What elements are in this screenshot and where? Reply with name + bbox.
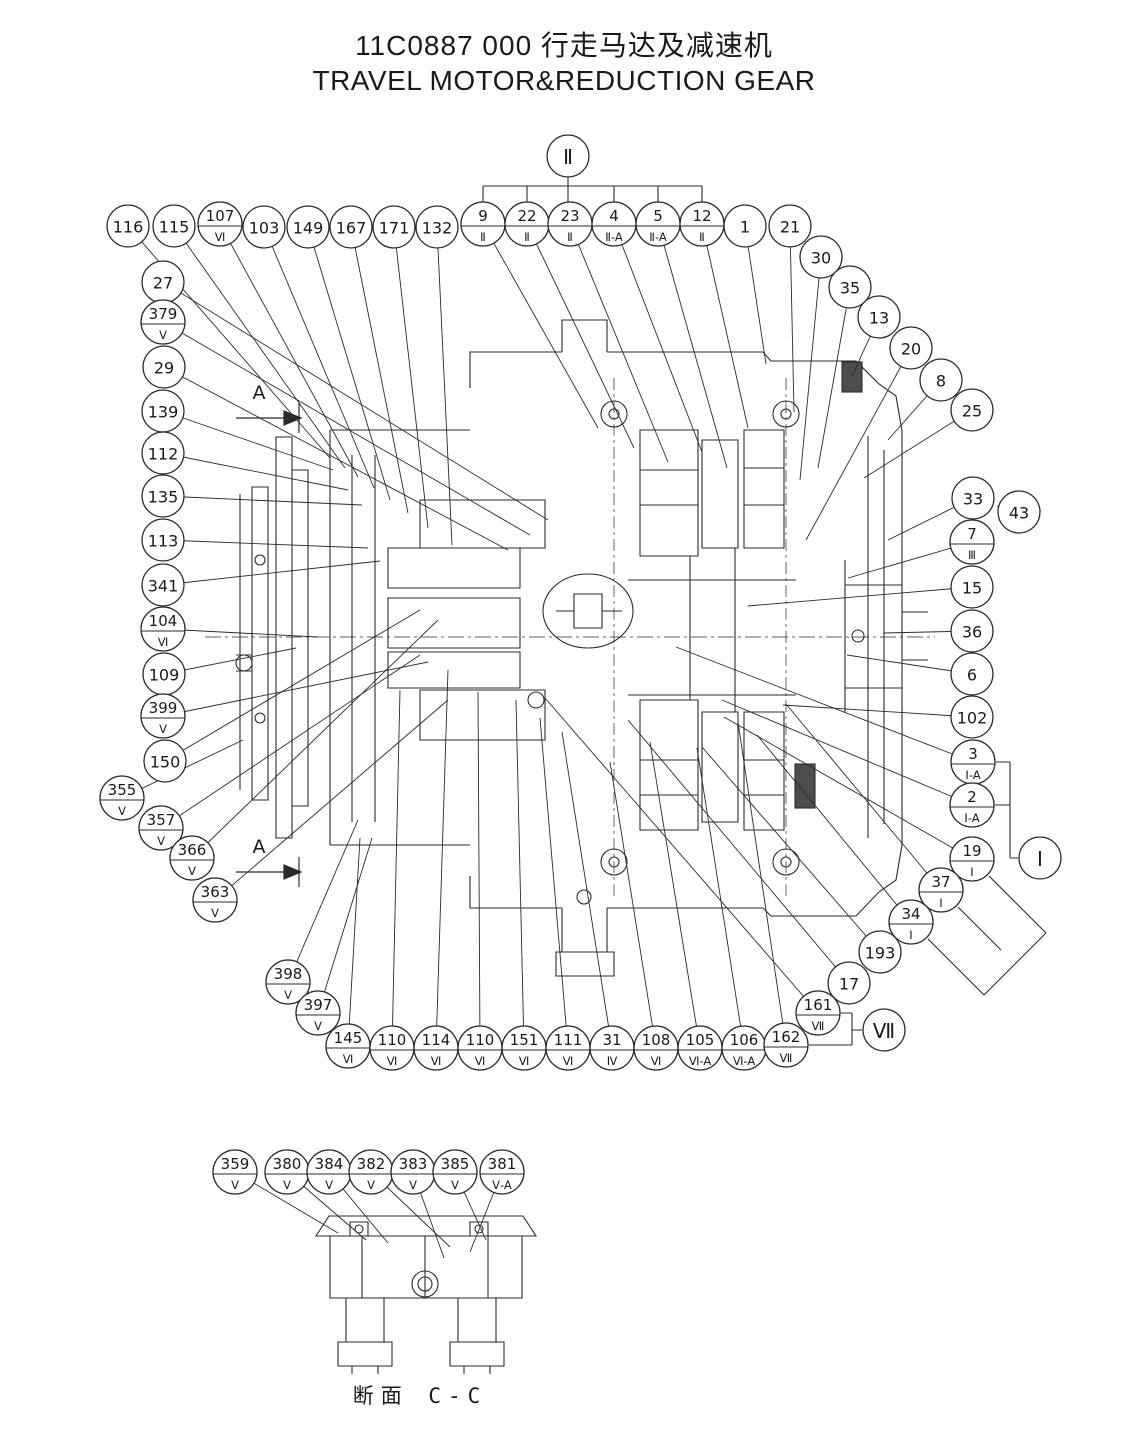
svg-text:31: 31: [602, 1031, 621, 1049]
svg-text:397: 397: [304, 996, 333, 1014]
section-arrow-a-lower: A: [236, 836, 301, 887]
balloon-113: 113: [142, 519, 184, 561]
balloon-379: 379Ⅴ: [141, 300, 185, 344]
balloon-399: 399Ⅴ: [141, 694, 185, 738]
balloon-366: 366Ⅴ: [170, 836, 214, 880]
svg-text:114: 114: [422, 1031, 451, 1049]
svg-text:355: 355: [108, 781, 137, 799]
svg-text:139: 139: [148, 403, 179, 422]
balloon-107: 107Ⅵ: [198, 202, 242, 246]
svg-text:13: 13: [869, 309, 889, 328]
svg-text:Ⅰ: Ⅰ: [1037, 847, 1043, 871]
svg-text:110: 110: [378, 1031, 407, 1049]
svg-text:Ⅴ: Ⅴ: [325, 1178, 333, 1192]
svg-text:Ⅴ-A: Ⅴ-A: [492, 1178, 512, 1192]
balloon-161: 161Ⅶ: [796, 991, 840, 1035]
svg-text:Ⅵ: Ⅵ: [651, 1054, 662, 1068]
balloon-381: 381Ⅴ-A: [480, 1150, 524, 1194]
svg-text:111: 111: [554, 1031, 583, 1049]
balloon-25: 25: [951, 389, 993, 431]
balloon-359: 359Ⅴ: [213, 1150, 257, 1194]
balloon-112: 112: [142, 432, 184, 474]
balloon-355: 355Ⅴ: [100, 776, 144, 820]
balloon-385: 385Ⅴ: [433, 1150, 477, 1194]
svg-text:Ⅳ: Ⅳ: [607, 1054, 618, 1068]
svg-text:Ⅵ: Ⅵ: [563, 1054, 574, 1068]
svg-text:19: 19: [962, 842, 981, 860]
balloon-5: 5Ⅱ-A: [636, 202, 680, 246]
balloon-106: 106Ⅵ-A: [722, 1026, 766, 1070]
svg-text:380: 380: [273, 1155, 302, 1173]
balloon-104: 104Ⅵ: [141, 607, 185, 651]
balloon-31: 31Ⅳ: [590, 1026, 634, 1070]
balloon-9: 9Ⅱ: [461, 202, 505, 246]
balloon-149: 149: [287, 206, 329, 248]
svg-text:33: 33: [963, 490, 983, 509]
svg-text:Ⅱ: Ⅱ: [699, 230, 705, 244]
svg-text:27: 27: [153, 274, 173, 293]
svg-text:Ⅵ-A: Ⅵ-A: [733, 1054, 756, 1068]
balloon-103: 103: [243, 206, 285, 248]
balloon-4: 4Ⅱ-A: [592, 202, 636, 246]
balloon-116: 116: [107, 205, 149, 247]
parts-diagram: A A 116115107Ⅵ1031491671711329Ⅱ22Ⅱ23Ⅱ4Ⅱ-…: [0, 0, 1128, 1455]
svg-text:Ⅵ: Ⅵ: [158, 635, 169, 649]
svg-text:36: 36: [962, 623, 982, 642]
svg-text:385: 385: [441, 1155, 470, 1173]
section-balloon-Ⅶ: Ⅶ: [863, 1009, 905, 1051]
svg-text:Ⅴ: Ⅴ: [188, 864, 196, 878]
balloon-7: 7Ⅲ: [950, 520, 994, 564]
balloon-6: 6: [951, 653, 993, 695]
svg-text:151: 151: [510, 1031, 539, 1049]
svg-text:112: 112: [148, 445, 179, 464]
svg-text:341: 341: [148, 577, 179, 596]
svg-text:Ⅴ: Ⅴ: [157, 834, 165, 848]
svg-text:110: 110: [466, 1031, 495, 1049]
balloon-150: 150: [144, 740, 186, 782]
balloon-383: 383Ⅴ: [391, 1150, 435, 1194]
balloon-111: 111Ⅵ: [546, 1026, 590, 1070]
svg-text:Ⅴ: Ⅴ: [283, 1178, 291, 1192]
balloon-110: 110Ⅵ: [370, 1026, 414, 1070]
page: 11C0887 000 行走马达及减速机 TRAVEL MOTOR&REDUCT…: [0, 0, 1128, 1455]
svg-text:Ⅲ: Ⅲ: [968, 548, 976, 562]
section-arrow-label: A: [253, 836, 266, 858]
balloon-341: 341: [142, 564, 184, 606]
svg-text:1: 1: [740, 218, 750, 237]
svg-text:102: 102: [957, 709, 988, 728]
svg-text:43: 43: [1009, 504, 1029, 523]
svg-text:2: 2: [967, 788, 977, 806]
balloon-callouts: 116115107Ⅵ1031491671711329Ⅱ22Ⅱ23Ⅱ4Ⅱ-A5Ⅱ-…: [100, 135, 1061, 1194]
section-arrow-a-upper: A: [236, 382, 301, 433]
section-cc-view: [316, 1216, 536, 1374]
svg-text:17: 17: [839, 975, 859, 994]
svg-text:37: 37: [931, 873, 950, 891]
balloon-105: 105Ⅵ-A: [678, 1026, 722, 1070]
svg-text:Ⅴ: Ⅴ: [367, 1178, 375, 1192]
svg-text:Ⅴ: Ⅴ: [211, 906, 219, 920]
svg-text:Ⅴ: Ⅴ: [314, 1019, 322, 1033]
svg-text:Ⅵ: Ⅵ: [215, 230, 226, 244]
svg-text:384: 384: [315, 1155, 344, 1173]
svg-text:29: 29: [154, 359, 174, 378]
balloon-36: 36: [951, 610, 993, 652]
svg-text:23: 23: [560, 207, 579, 225]
balloon-13: 13: [858, 296, 900, 338]
svg-text:21: 21: [780, 218, 800, 237]
svg-text:Ⅰ-A: Ⅰ-A: [964, 811, 979, 825]
svg-text:162: 162: [772, 1028, 801, 1046]
svg-text:357: 357: [147, 811, 176, 829]
svg-text:Ⅵ: Ⅵ: [431, 1054, 442, 1068]
svg-text:3: 3: [968, 745, 978, 763]
balloon-139: 139: [142, 390, 184, 432]
svg-text:363: 363: [201, 883, 230, 901]
svg-text:171: 171: [379, 219, 410, 238]
svg-text:30: 30: [811, 249, 831, 268]
balloon-109: 109: [143, 653, 185, 695]
svg-text:Ⅶ: Ⅶ: [873, 1019, 895, 1043]
svg-text:Ⅴ: Ⅴ: [284, 988, 292, 1002]
balloon-167: 167: [330, 206, 372, 248]
svg-text:382: 382: [357, 1155, 386, 1173]
cross-section-drawing: [205, 320, 935, 976]
svg-text:Ⅵ: Ⅵ: [475, 1054, 486, 1068]
balloon-380: 380Ⅴ: [265, 1150, 309, 1194]
svg-text:35: 35: [840, 279, 860, 298]
balloon-162: 162Ⅶ: [764, 1023, 808, 1067]
svg-text:20: 20: [901, 340, 921, 359]
svg-text:8: 8: [936, 372, 946, 391]
balloon-43: 43: [998, 491, 1040, 533]
svg-text:399: 399: [149, 699, 178, 717]
bracket-group-2: [483, 177, 702, 202]
balloon-115: 115: [153, 205, 195, 247]
balloon-21: 21: [769, 205, 811, 247]
svg-text:9: 9: [478, 207, 488, 225]
svg-text:Ⅴ: Ⅴ: [231, 1178, 239, 1192]
svg-text:161: 161: [804, 996, 833, 1014]
svg-text:107: 107: [206, 207, 235, 225]
section-balloon-Ⅱ: Ⅱ: [547, 135, 589, 177]
svg-text:135: 135: [148, 488, 179, 507]
svg-text:6: 6: [967, 666, 977, 685]
svg-text:359: 359: [221, 1155, 250, 1173]
svg-text:398: 398: [274, 965, 303, 983]
section-balloon-Ⅰ: Ⅰ: [1019, 837, 1061, 879]
balloon-20: 20: [890, 327, 932, 369]
svg-text:381: 381: [488, 1155, 517, 1173]
svg-text:109: 109: [149, 666, 180, 685]
balloon-12: 12Ⅱ: [680, 202, 724, 246]
svg-text:Ⅰ: Ⅰ: [939, 896, 942, 910]
balloon-114: 114Ⅵ: [414, 1026, 458, 1070]
svg-text:366: 366: [178, 841, 207, 859]
svg-text:150: 150: [150, 753, 181, 772]
balloon-135: 135: [142, 475, 184, 517]
balloon-2: 2Ⅰ-A: [950, 783, 994, 827]
svg-text:34: 34: [901, 905, 920, 923]
balloon-108: 108Ⅵ: [634, 1026, 678, 1070]
svg-text:379: 379: [149, 305, 178, 323]
svg-text:Ⅴ: Ⅴ: [118, 804, 126, 818]
svg-text:113: 113: [148, 532, 179, 551]
balloon-1: 1: [724, 205, 766, 247]
balloon-193: 193: [859, 931, 901, 973]
balloon-23: 23Ⅱ: [548, 202, 592, 246]
svg-text:Ⅶ: Ⅶ: [780, 1051, 793, 1065]
svg-text:Ⅵ: Ⅵ: [343, 1052, 354, 1066]
balloon-384: 384Ⅴ: [307, 1150, 351, 1194]
svg-text:Ⅴ: Ⅴ: [451, 1178, 459, 1192]
balloon-33: 33: [952, 477, 994, 519]
svg-text:167: 167: [336, 219, 367, 238]
balloon-132: 132: [416, 206, 458, 248]
svg-text:7: 7: [967, 525, 977, 543]
svg-text:116: 116: [113, 218, 144, 237]
svg-text:Ⅰ-A: Ⅰ-A: [965, 768, 980, 782]
svg-text:115: 115: [159, 218, 190, 237]
svg-text:104: 104: [149, 612, 178, 630]
svg-text:Ⅵ: Ⅵ: [387, 1054, 398, 1068]
svg-text:Ⅱ: Ⅱ: [480, 230, 486, 244]
balloon-22: 22Ⅱ: [505, 202, 549, 246]
svg-text:Ⅴ: Ⅴ: [159, 328, 167, 342]
svg-text:193: 193: [865, 944, 896, 963]
svg-text:108: 108: [642, 1031, 671, 1049]
svg-text:22: 22: [517, 207, 536, 225]
svg-text:15: 15: [962, 579, 982, 598]
section-caption: 断面 C-C: [300, 1380, 540, 1410]
balloon-171: 171: [373, 206, 415, 248]
balloon-363: 363Ⅴ: [193, 878, 237, 922]
svg-text:4: 4: [609, 207, 619, 225]
svg-text:Ⅵ: Ⅵ: [519, 1054, 530, 1068]
svg-text:132: 132: [422, 219, 453, 238]
svg-text:25: 25: [962, 402, 982, 421]
svg-text:12: 12: [692, 207, 711, 225]
balloon-151: 151Ⅵ: [502, 1026, 546, 1070]
svg-text:Ⅱ: Ⅱ: [563, 145, 573, 169]
balloon-145: 145Ⅵ: [326, 1024, 370, 1068]
svg-text:Ⅱ: Ⅱ: [524, 230, 530, 244]
svg-text:Ⅱ: Ⅱ: [567, 230, 573, 244]
svg-text:Ⅶ: Ⅶ: [812, 1019, 825, 1033]
balloon-29: 29: [143, 346, 185, 388]
section-arrow-label: A: [253, 382, 266, 404]
balloon-382: 382Ⅴ: [349, 1150, 393, 1194]
svg-text:5: 5: [653, 207, 663, 225]
balloon-102: 102: [951, 696, 993, 738]
balloon-110: 110Ⅵ: [458, 1026, 502, 1070]
svg-text:383: 383: [399, 1155, 428, 1173]
balloon-27: 27: [142, 261, 184, 303]
svg-text:Ⅴ: Ⅴ: [409, 1178, 417, 1192]
svg-text:149: 149: [293, 219, 324, 238]
balloon-15: 15: [951, 566, 993, 608]
svg-text:103: 103: [249, 219, 280, 238]
balloon-8: 8: [920, 359, 962, 401]
svg-text:Ⅰ: Ⅰ: [970, 865, 973, 879]
svg-text:Ⅱ-A: Ⅱ-A: [649, 230, 667, 244]
svg-text:Ⅱ-A: Ⅱ-A: [605, 230, 623, 244]
svg-text:145: 145: [334, 1029, 363, 1047]
svg-text:106: 106: [730, 1031, 759, 1049]
svg-text:Ⅰ: Ⅰ: [909, 928, 912, 942]
svg-text:Ⅴ: Ⅴ: [159, 722, 167, 736]
svg-text:105: 105: [686, 1031, 715, 1049]
balloon-3: 3Ⅰ-A: [951, 740, 995, 784]
svg-text:Ⅵ-A: Ⅵ-A: [689, 1054, 712, 1068]
